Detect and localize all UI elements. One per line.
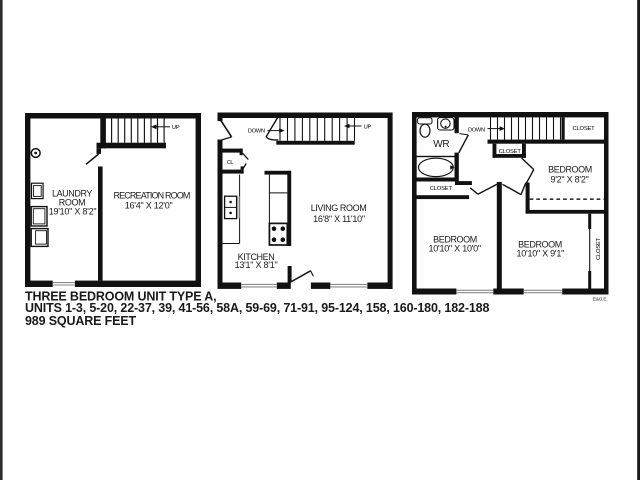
svg-text:DOWN: DOWN [248, 129, 265, 135]
svg-text:WR: WR [433, 139, 449, 150]
svg-text:CLOSET: CLOSET [596, 237, 602, 260]
svg-text:10'10" X 9'1": 10'10" X 9'1" [516, 249, 564, 259]
svg-text:10'10" X 10'0": 10'10" X 10'0" [429, 244, 481, 254]
svg-text:UP: UP [172, 125, 180, 131]
svg-text:BEDROOM: BEDROOM [548, 164, 592, 174]
svg-text:CL: CL [227, 160, 234, 166]
svg-text:CLOSET: CLOSET [430, 186, 453, 192]
svg-text:UNITS 1-3, 5-20, 22-37, 39, 41: UNITS 1-3, 5-20, 22-37, 39, 41-56, 58A, … [25, 301, 489, 315]
svg-text:CLOSET: CLOSET [499, 149, 522, 155]
svg-text:RECREATION ROOM: RECREATION ROOM [113, 190, 189, 200]
svg-text:LIVING ROOM: LIVING ROOM [311, 203, 367, 213]
svg-text:DOWN: DOWN [468, 127, 485, 133]
svg-text:13'1" X 8'1": 13'1" X 8'1" [235, 260, 278, 270]
svg-text:989 SQUARE FEET: 989 SQUARE FEET [25, 314, 136, 328]
svg-text:UP: UP [364, 125, 372, 131]
svg-text:16'8" X 11'10": 16'8" X 11'10" [313, 214, 365, 224]
svg-text:E&O.E.: E&O.E. [593, 296, 608, 301]
svg-text:9'2" X 8'2": 9'2" X 8'2" [550, 174, 588, 184]
svg-text:19'10" X 8'2": 19'10" X 8'2" [49, 207, 97, 217]
svg-text:16'4" X 12'0": 16'4" X 12'0" [125, 201, 173, 211]
svg-text:CLOSET: CLOSET [573, 126, 596, 132]
